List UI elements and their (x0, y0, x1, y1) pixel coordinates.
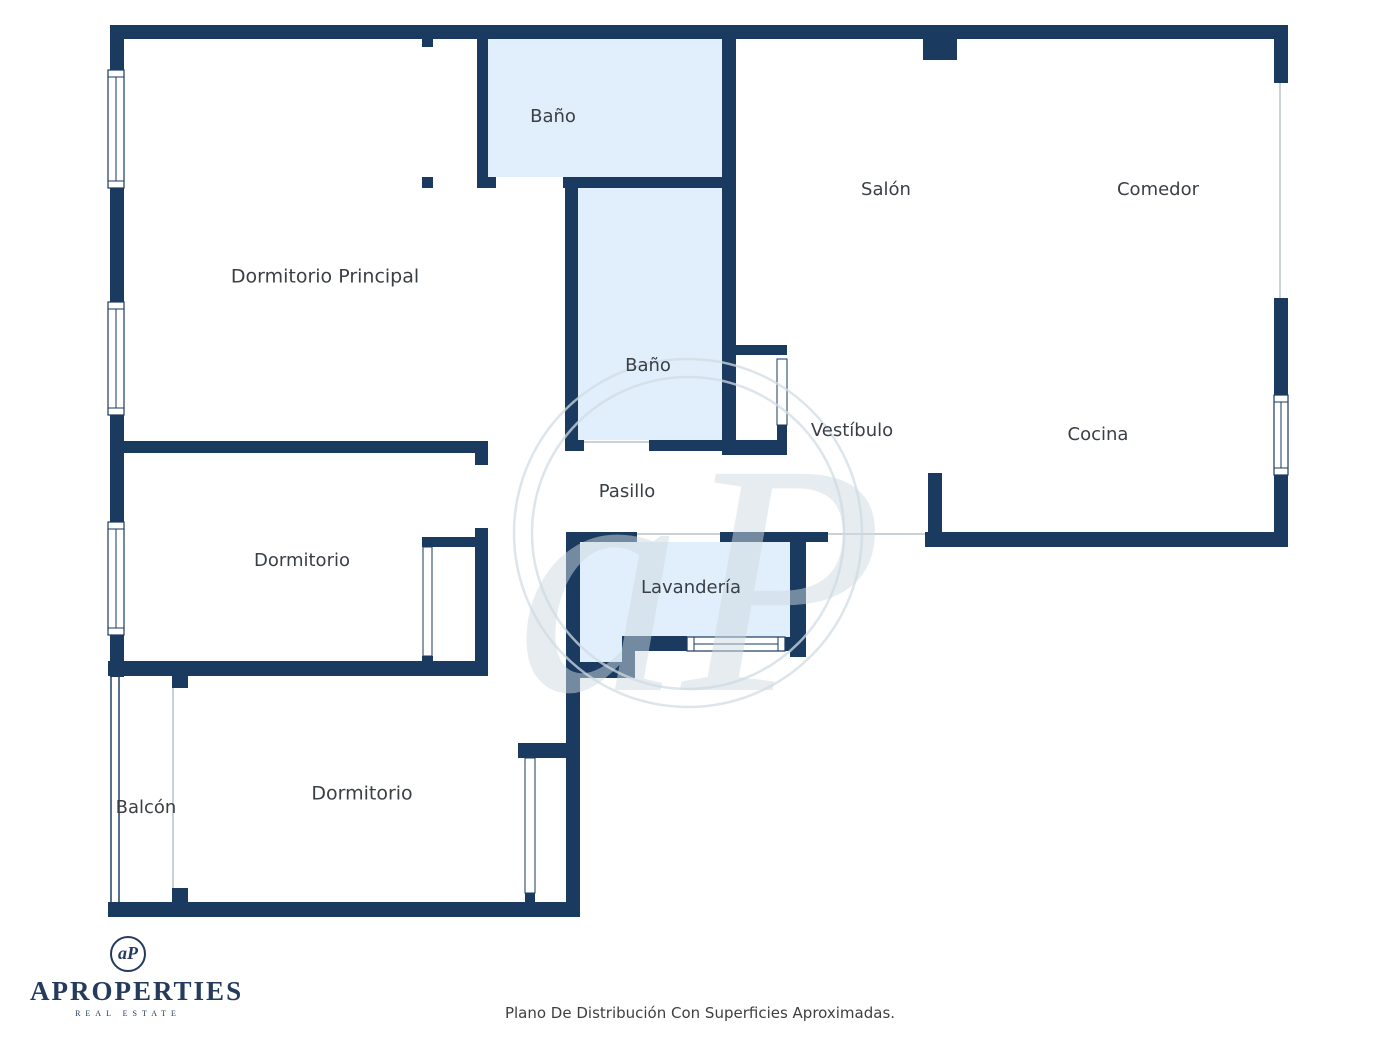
wall (110, 441, 488, 453)
wall (422, 39, 433, 47)
wall (110, 25, 124, 70)
wall (172, 676, 188, 688)
room-label: Salón (861, 179, 911, 200)
room-label: Vestíbulo (811, 420, 893, 441)
wall (172, 888, 188, 902)
wall (422, 177, 433, 188)
room-label: Lavandería (641, 577, 741, 598)
wall (925, 532, 1288, 547)
wall (422, 537, 477, 547)
wall (563, 177, 722, 188)
wall (475, 528, 488, 673)
wall (110, 415, 124, 522)
room-label: Baño (530, 106, 576, 127)
door-panel-icon (525, 758, 535, 893)
room-label: Dormitorio (311, 783, 412, 805)
floor-plan-page: aPBañoSalónComedorDormitorio PrincipalBa… (0, 0, 1400, 1050)
wall (477, 39, 488, 188)
wall (722, 39, 736, 455)
room-label: Comedor (1117, 179, 1200, 200)
wall (110, 25, 1288, 39)
plan-caption: Plano De Distribución Con Superficies Ap… (0, 1004, 1400, 1022)
floor-plan-drawing: aPBañoSalónComedorDormitorio PrincipalBa… (0, 0, 1400, 1050)
room-label: Pasillo (599, 481, 655, 502)
wall (928, 473, 942, 535)
wall (108, 902, 578, 917)
room-label: Cocina (1068, 424, 1129, 445)
wall (722, 345, 787, 355)
wall (1274, 25, 1288, 83)
room-label: Balcón (116, 797, 177, 818)
wall (475, 441, 488, 465)
wall (108, 661, 488, 676)
room-label: Baño (625, 355, 671, 376)
agency-brand-name: APROPERTIES (30, 976, 226, 1007)
room-label: Dormitorio Principal (231, 266, 419, 288)
room-label: Dormitorio (254, 550, 350, 571)
agency-monogram-icon: aP (110, 936, 146, 972)
room-fill-bano-1 (488, 39, 722, 177)
wall (923, 39, 957, 60)
wall (1274, 298, 1288, 395)
wall (110, 188, 124, 302)
door-panel-icon (423, 547, 432, 656)
wall (477, 177, 496, 188)
